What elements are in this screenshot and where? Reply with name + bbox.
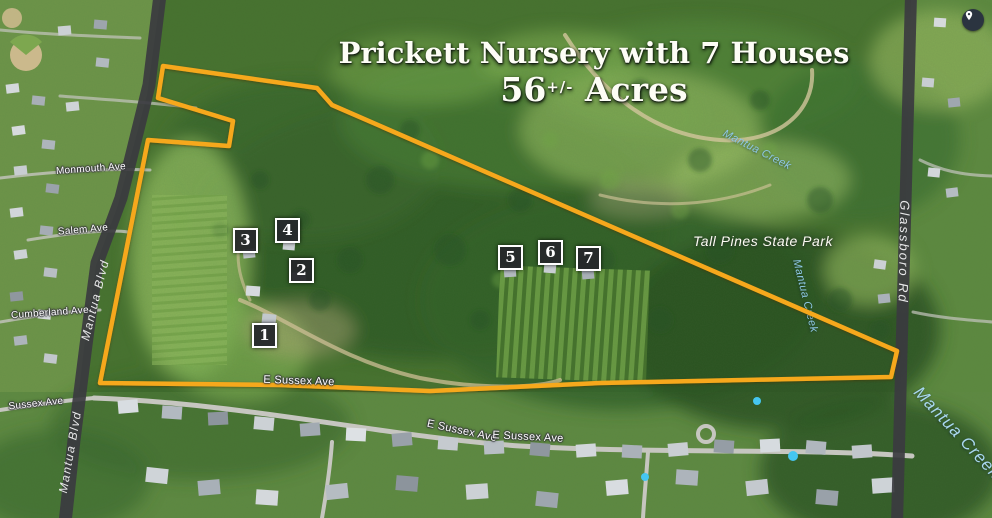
- location-pin-icon: [962, 9, 984, 31]
- street-label-e-sussex-west: E Sussex Ave: [263, 374, 335, 388]
- street-label-sussex-ave: Sussex Ave: [8, 396, 64, 413]
- street-label-cumberland-ave: Cumberland Ave: [11, 305, 90, 321]
- title-line-2: 56+/- Acres: [339, 70, 850, 110]
- house-marker-6: 6: [538, 240, 563, 265]
- road-label-glassboro-rd: Glassboro Rd: [896, 200, 913, 304]
- house-marker-1: 1: [252, 323, 277, 348]
- street-label-e-sussex-mid: E Sussex Ave: [426, 418, 498, 445]
- park-label-tall-pines: Tall Pines State Park: [693, 233, 833, 249]
- house-marker-2: 2: [289, 258, 314, 283]
- house-marker-3: 3: [233, 228, 258, 253]
- house-marker-5: 5: [498, 245, 523, 270]
- street-label-e-sussex-east: E Sussex Ave: [492, 429, 564, 445]
- aerial-property-map: Mantua Creek Mantua Creek Mantua Creek M…: [0, 0, 992, 518]
- road-label-mantua-blvd-upper: Mantua Blvd: [78, 258, 112, 342]
- page-title: Prickett Nursery with 7 Houses 56+/- Acr…: [339, 38, 850, 109]
- plus-minus-superscript: +/-: [546, 78, 573, 96]
- road-label-mantua-blvd-lower: Mantua Blvd: [56, 410, 84, 494]
- house-marker-7: 7: [576, 246, 601, 271]
- street-label-salem-ave: Salem Ave: [57, 222, 108, 237]
- title-line-1: Prickett Nursery with 7 Houses: [339, 38, 850, 70]
- street-label-monmouth-ave: Monmouth Ave: [56, 161, 127, 177]
- house-marker-4: 4: [275, 218, 300, 243]
